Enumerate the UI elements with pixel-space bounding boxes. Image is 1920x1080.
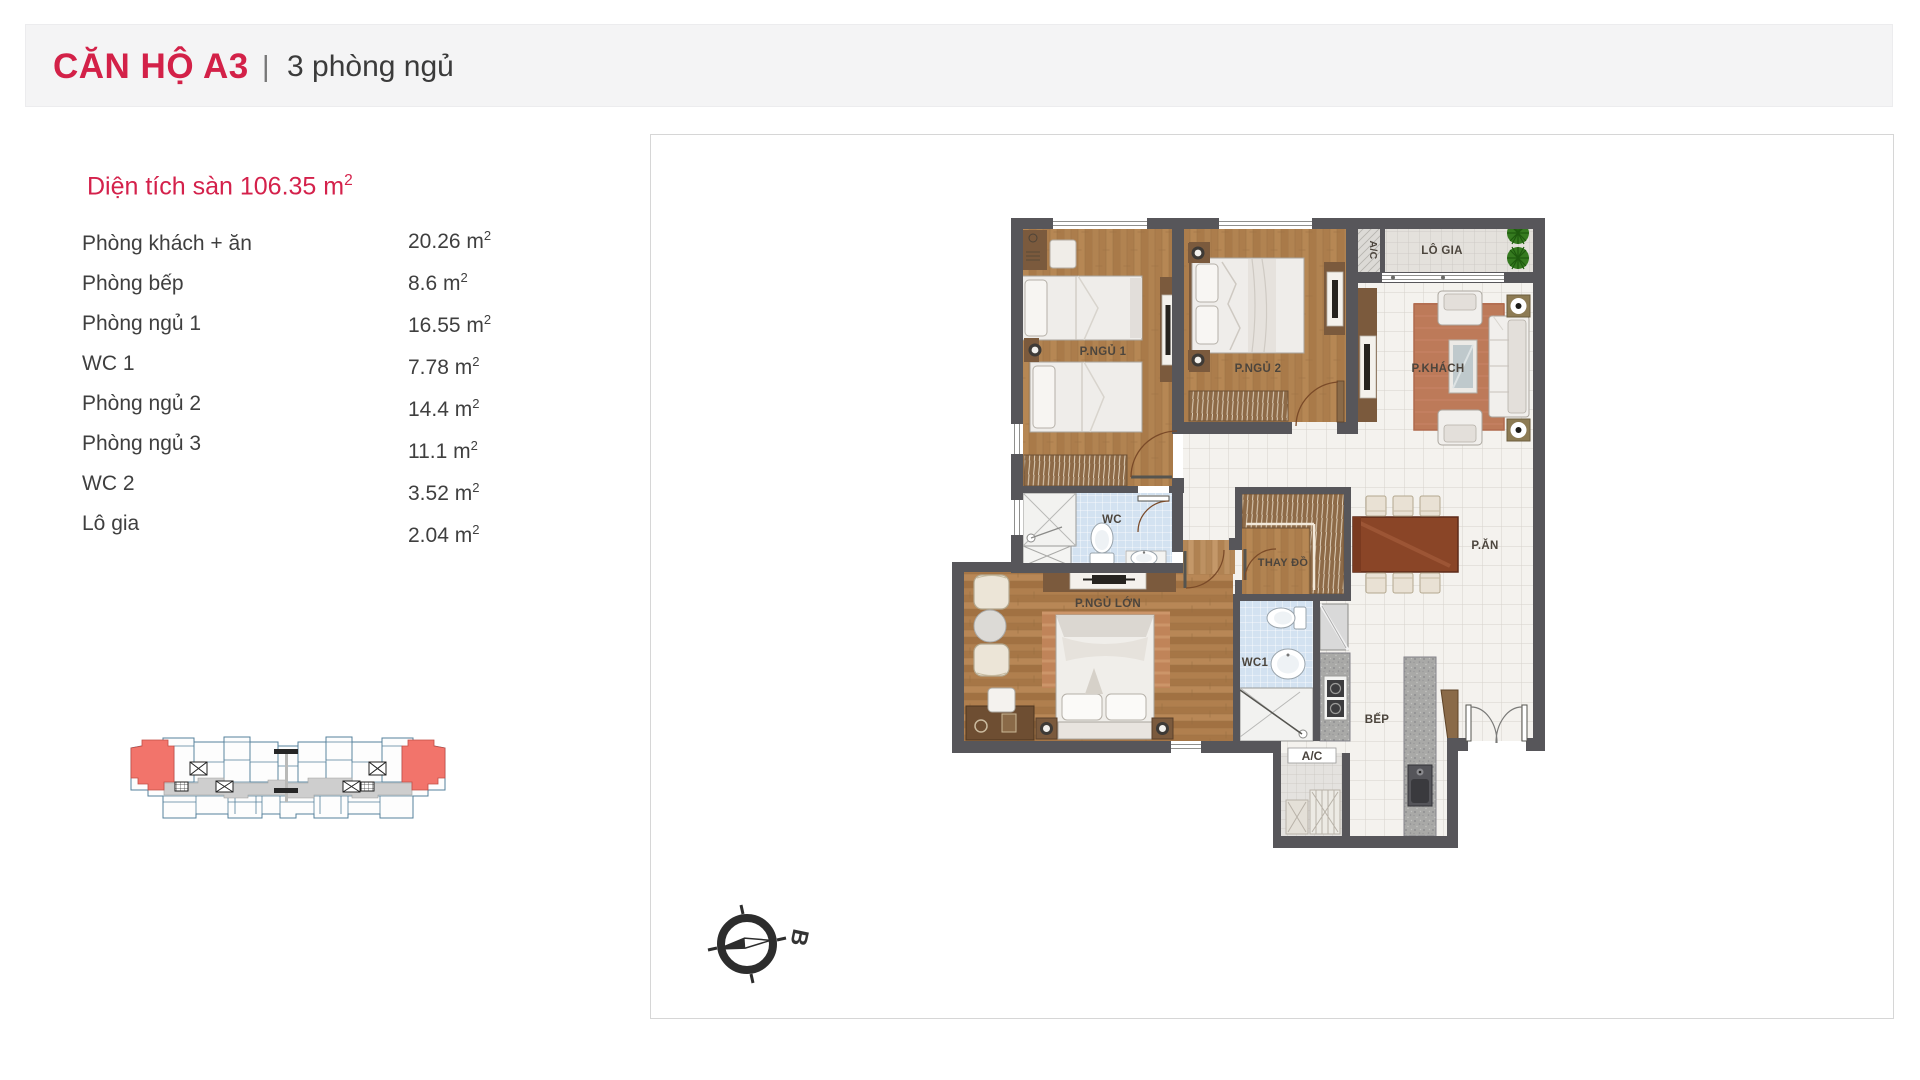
svg-text:P.NGỦ 1: P.NGỦ 1: [1080, 345, 1127, 358]
svg-text:P.NGỦ 2: P.NGỦ 2: [1235, 362, 1282, 375]
svg-text:THAY ĐỒ: THAY ĐỒ: [1258, 556, 1309, 569]
svg-text:P.KHÁCH: P.KHÁCH: [1411, 362, 1464, 375]
svg-text:A/C: A/C: [1302, 749, 1323, 763]
svg-text:WC1: WC1: [1242, 657, 1269, 669]
svg-text:P.ĂN: P.ĂN: [1471, 539, 1498, 552]
svg-text:WC: WC: [1102, 514, 1122, 526]
svg-text:A/C: A/C: [1367, 241, 1379, 260]
svg-text:LÔ GIA: LÔ GIA: [1421, 244, 1462, 257]
svg-text:B: B: [785, 927, 814, 949]
svg-text:P.NGỦ LỚN: P.NGỦ LỚN: [1075, 597, 1141, 610]
svg-text:BẾP: BẾP: [1365, 713, 1390, 726]
